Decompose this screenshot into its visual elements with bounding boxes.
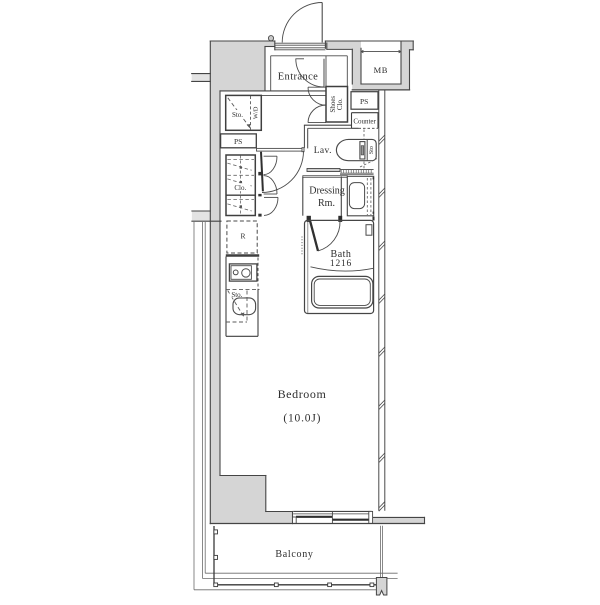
svg-text:Bedroom: Bedroom [278,387,327,401]
svg-text:Balcony: Balcony [275,549,313,560]
svg-text:PS: PS [360,97,368,106]
svg-text:(10.0J): (10.0J) [283,412,321,424]
svg-text:Sto.: Sto. [231,291,242,299]
svg-text:Dressing: Dressing [309,186,345,197]
svg-text:W/D: W/D [252,106,259,119]
svg-text:Lav.: Lav. [314,146,332,156]
svg-text:R: R [240,232,245,241]
svg-text:Sto: Sto [369,146,375,154]
svg-text:Counter: Counter [353,118,376,126]
svg-text:MB: MB [374,65,388,75]
svg-text:Clo.: Clo. [234,184,246,192]
svg-text:Rm.: Rm. [318,198,335,209]
svg-text:Sto.: Sto. [232,111,243,119]
svg-text:PS: PS [234,137,242,146]
svg-text:Entrance: Entrance [278,72,319,83]
svg-text:Clo.: Clo. [336,98,344,110]
svg-text:1216: 1216 [330,259,352,269]
